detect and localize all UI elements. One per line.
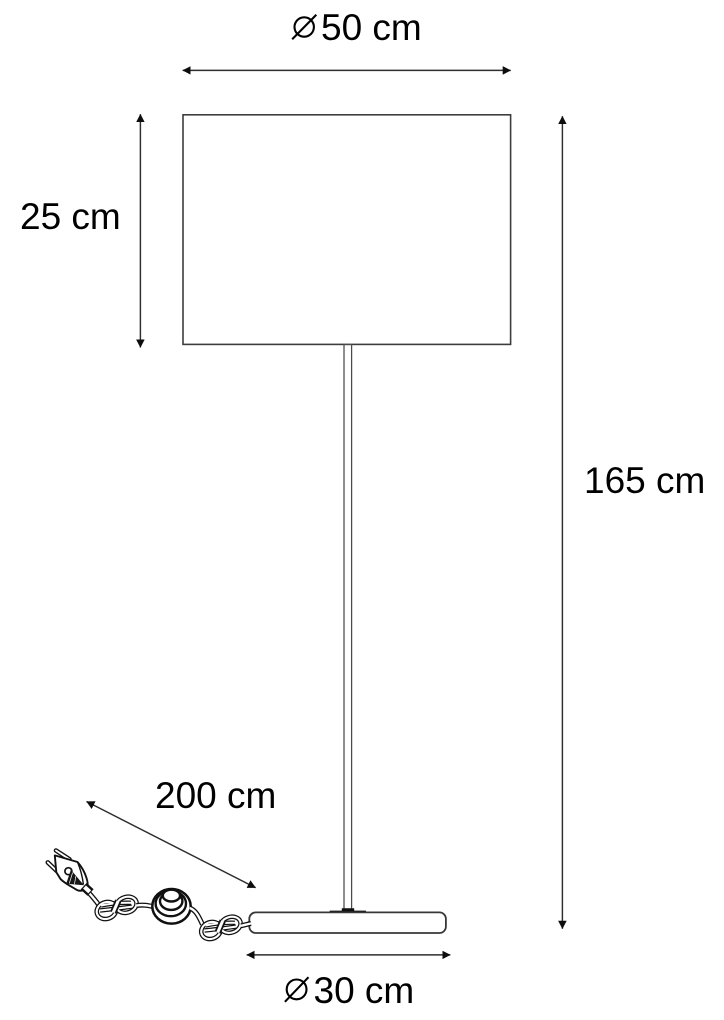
svg-text:165 cm: 165 cm <box>584 460 705 501</box>
svg-text:25 cm: 25 cm <box>20 196 121 237</box>
svg-text:30 cm: 30 cm <box>314 970 415 1011</box>
svg-text:50 cm: 50 cm <box>321 7 422 48</box>
svg-text:200 cm: 200 cm <box>155 775 276 816</box>
